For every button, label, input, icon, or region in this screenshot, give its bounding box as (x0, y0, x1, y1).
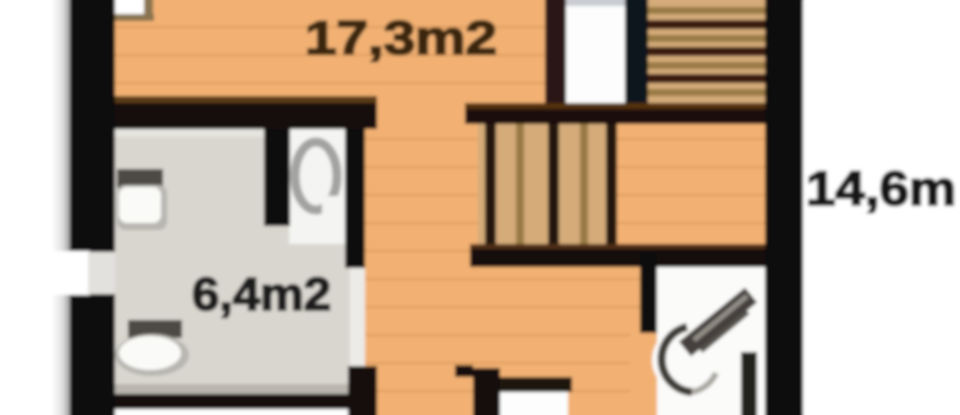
svg-text:17,3m2: 17,3m2 (305, 11, 497, 64)
svg-text:14,6m: 14,6m (806, 163, 956, 216)
svg-text:6,4m2: 6,4m2 (192, 268, 331, 320)
